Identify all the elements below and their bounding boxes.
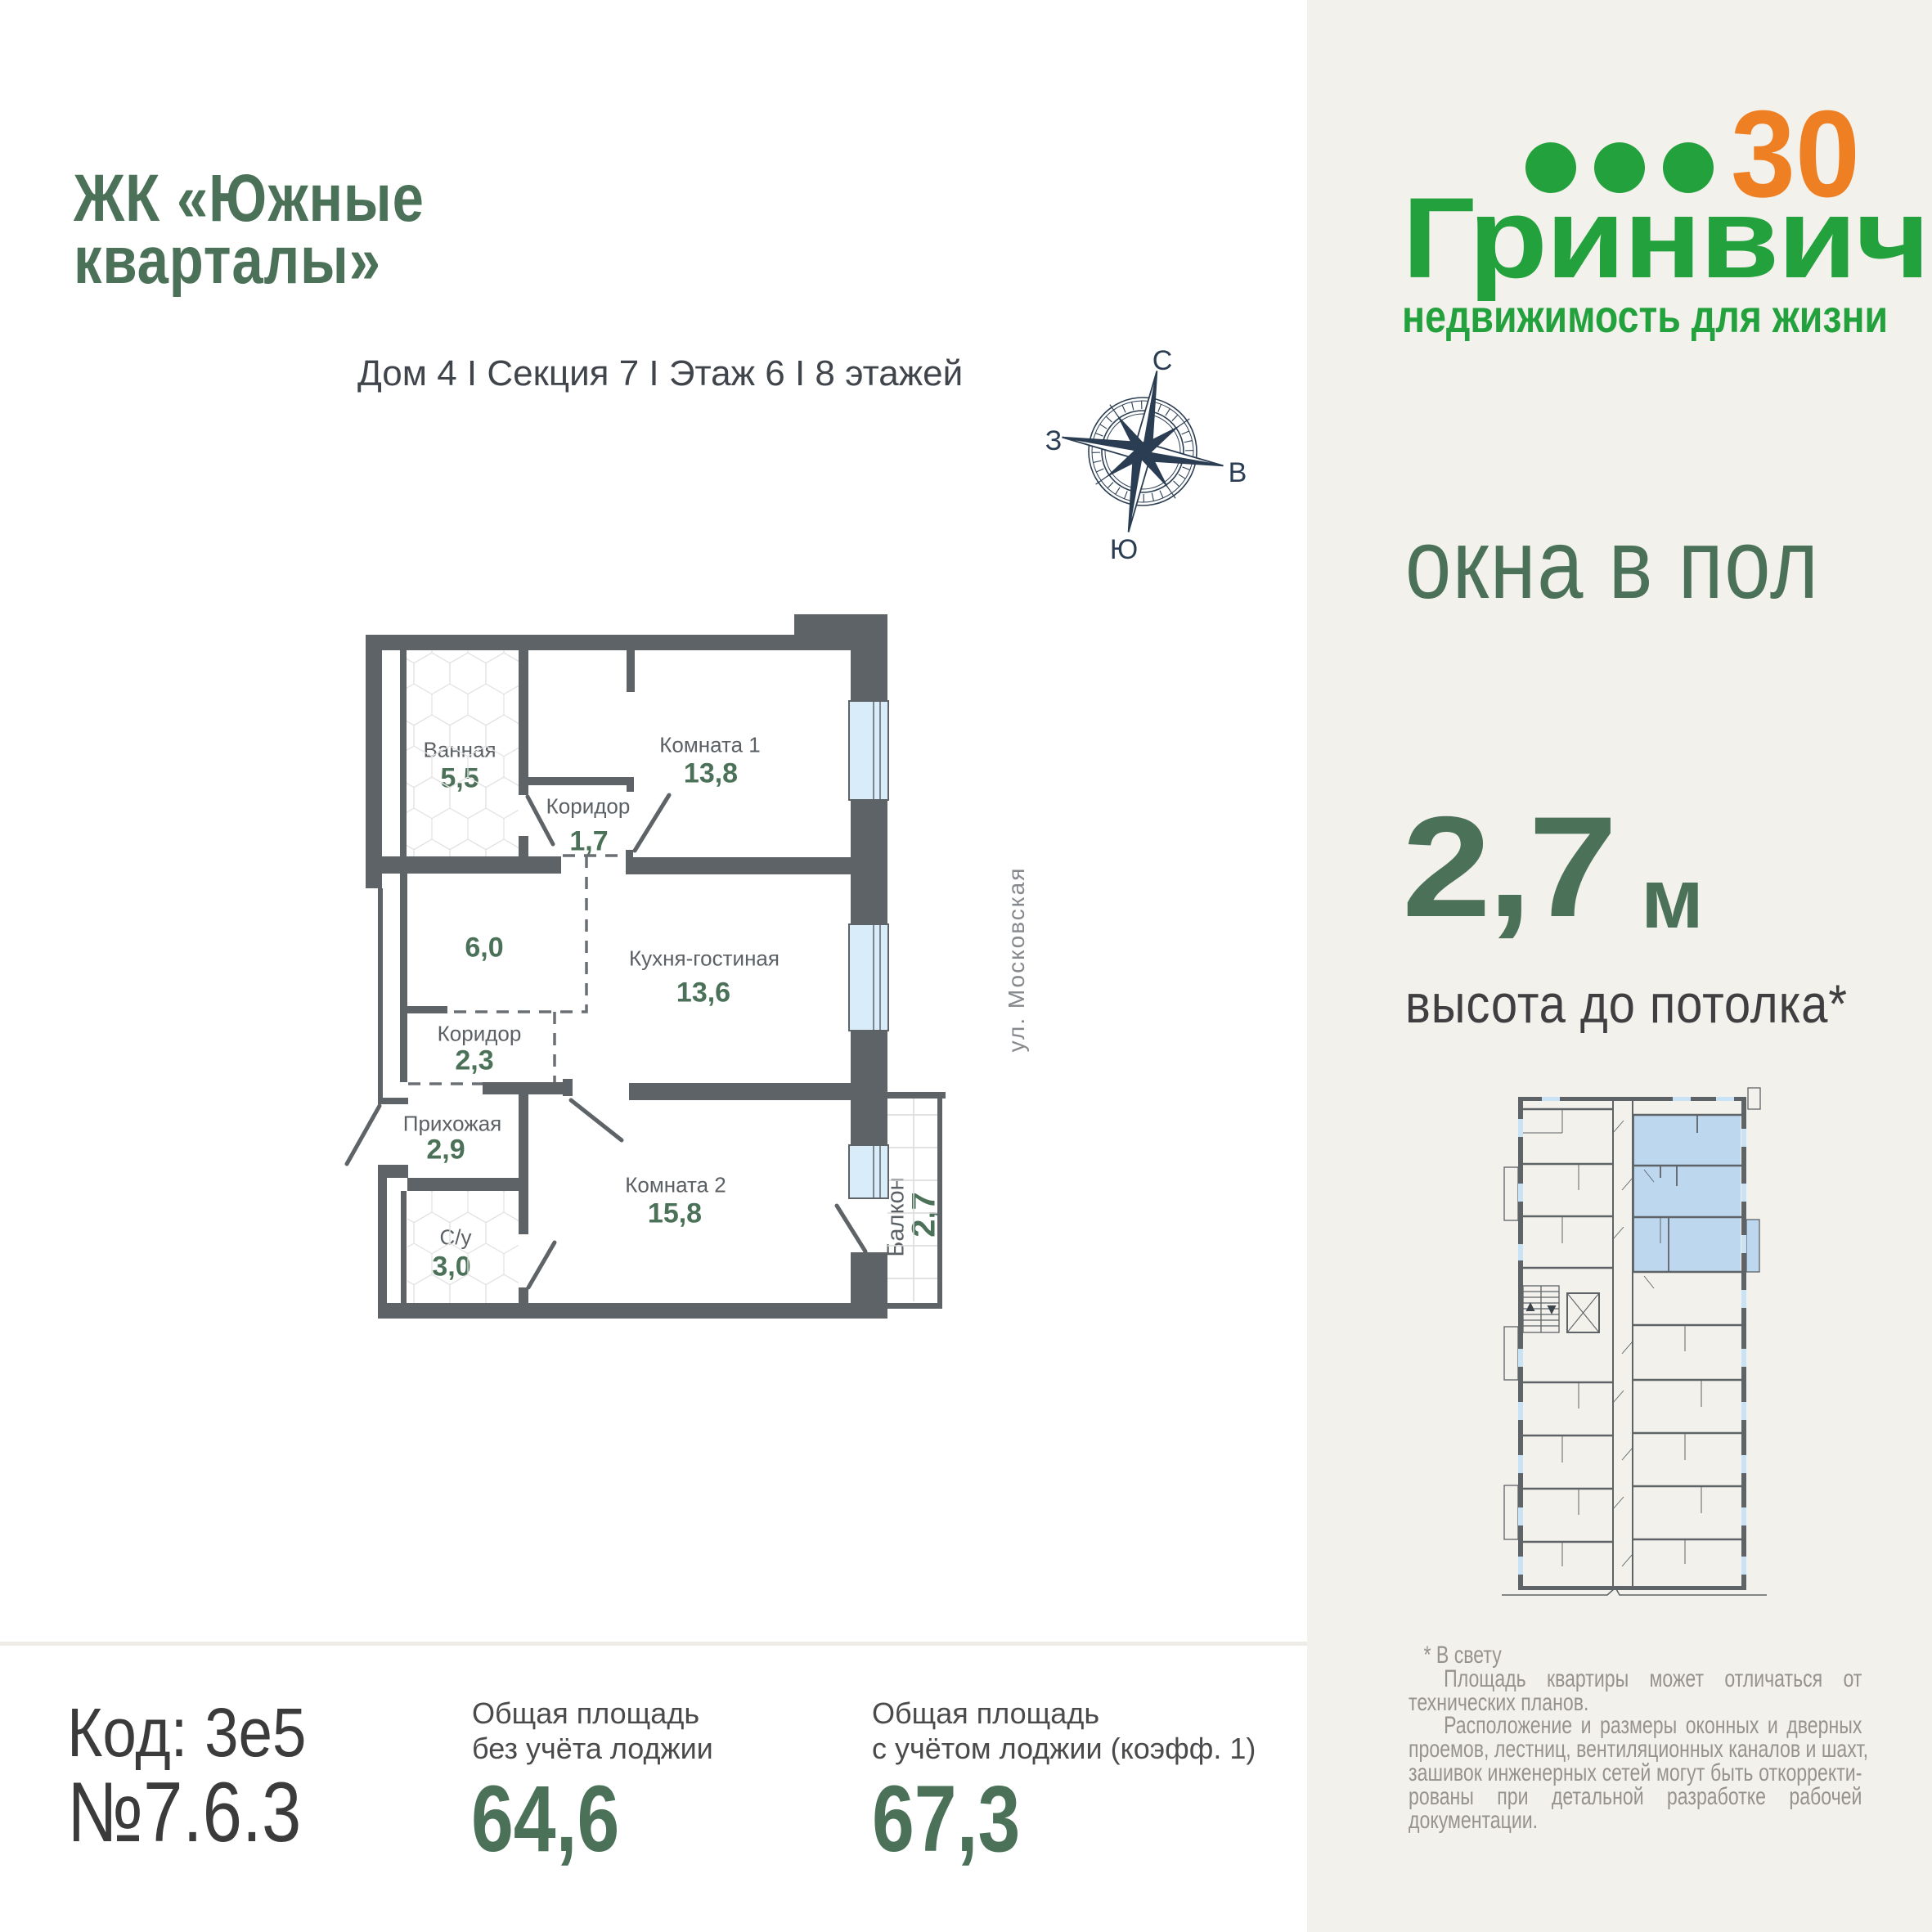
svg-text:В: В (1229, 457, 1247, 488)
svg-text:Ю: Ю (1110, 534, 1138, 565)
svg-text:З: З (1045, 425, 1063, 456)
svg-text:С: С (1152, 345, 1173, 376)
